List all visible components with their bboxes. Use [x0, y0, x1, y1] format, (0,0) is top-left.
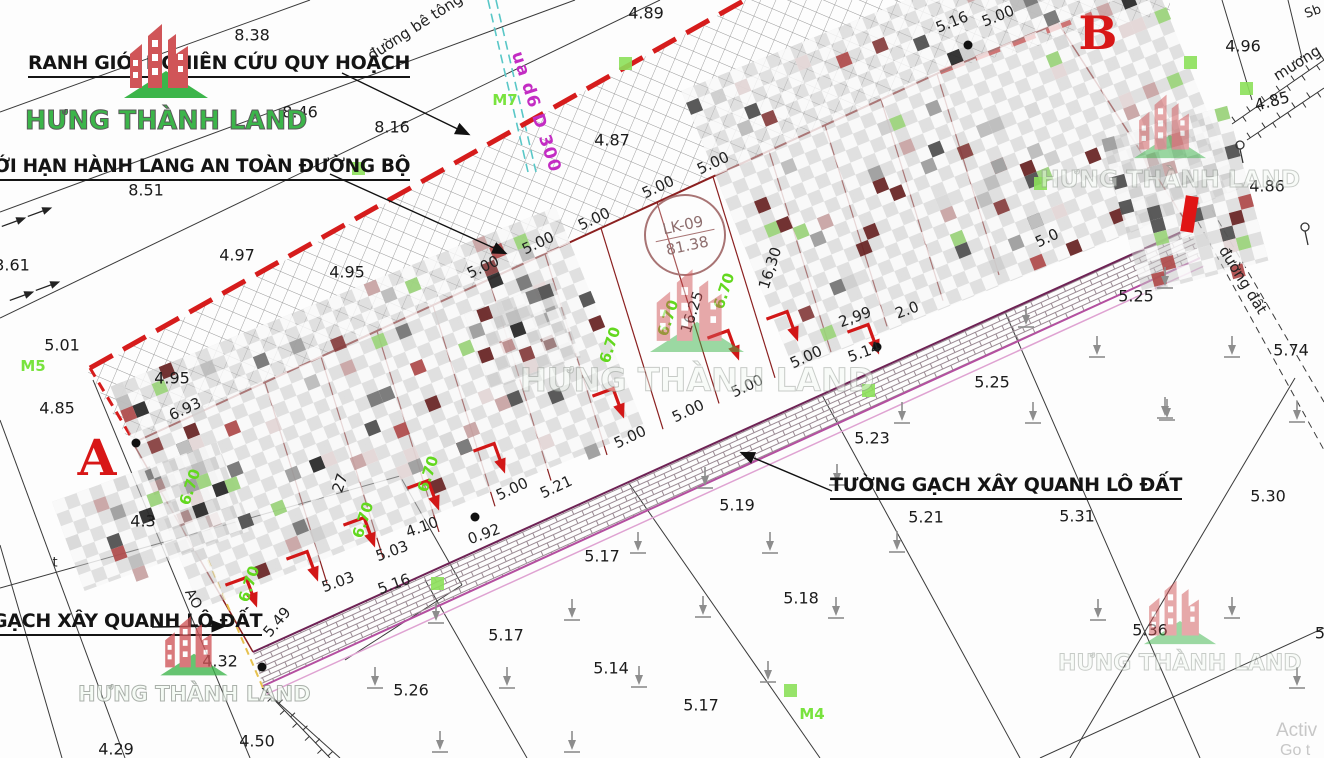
road-label: t — [52, 556, 57, 571]
elevation-label: 4.96 — [1225, 37, 1261, 56]
brand-name: HƯNG THÀNH LAND — [78, 682, 311, 706]
survey-point-dot — [132, 439, 141, 448]
spot-level-arrow — [894, 402, 910, 423]
spot-level-arrow — [1224, 336, 1240, 357]
flow-arrow-red — [473, 442, 510, 482]
survey-point-dot — [964, 41, 973, 50]
brand-name: HƯNG THÀNH LAND — [1040, 165, 1300, 193]
elevation-label: 8.16 — [374, 118, 410, 137]
brand-watermark-center: HƯNG THÀNH LAND — [520, 258, 874, 399]
elevation-label: 4.50 — [239, 732, 275, 751]
brand-building-icon — [154, 608, 234, 682]
spot-level-arrow — [367, 667, 383, 688]
elevation-label: 4.3 — [130, 512, 155, 531]
spot-level-arrow — [889, 531, 905, 552]
spot-level-arrow — [428, 602, 444, 623]
os-watermark-line1: Activ — [1276, 720, 1317, 742]
spot-level-arrow — [760, 661, 776, 682]
brand-name: HƯNG THÀNH LAND — [520, 361, 874, 399]
elevation-label: 4.97 — [219, 246, 255, 265]
brand-building-icon — [1127, 86, 1213, 165]
spot-level-arrow — [630, 532, 646, 553]
survey-marker-square — [431, 577, 444, 590]
elevation-label: 5.01 — [44, 336, 80, 355]
section-letter: A — [78, 433, 117, 483]
annotation-tuong-gach: TƯỜNG GẠCH XÂY QUANH LÔ ĐẤT — [830, 474, 1182, 500]
elevation-label: 4.95 — [329, 263, 365, 282]
survey-marker-square — [1184, 56, 1197, 69]
survey-marker-label: M4 — [799, 705, 824, 723]
road-direction-arrow — [8, 288, 35, 304]
section-marker-partial — [1180, 195, 1198, 233]
spot-level-arrow — [695, 596, 711, 617]
road-direction-arrow — [0, 214, 27, 230]
elevation-label: 4.85 — [39, 399, 75, 418]
elevation-label: 5.26 — [393, 681, 429, 700]
survey-marker-square — [619, 57, 632, 70]
section-letter: B — [1079, 10, 1118, 56]
elevation-label: 4.29 — [98, 740, 134, 758]
brand-watermark-top-right: HƯNG THÀNH LAND — [1040, 86, 1300, 193]
utility-pole-icon — [1301, 223, 1309, 245]
spot-level-arrow — [1157, 397, 1173, 418]
elevation-label: 5.17 — [584, 547, 620, 566]
brand-building-icon — [1137, 572, 1223, 651]
spot-level-arrow — [828, 597, 844, 618]
elevation-label: 5.25 — [1118, 287, 1154, 306]
spot-level-arrow — [697, 467, 713, 488]
spot-level-arrow — [564, 599, 580, 620]
brand-watermark-bottom-right: HƯNG THÀNH LAND — [1058, 572, 1302, 676]
brand-watermark-bottom-left: HƯNG THÀNH LAND — [78, 608, 311, 706]
elevation-label: 8.51 — [128, 181, 164, 200]
brand-building-icon — [116, 14, 216, 106]
elevation-label: 3.61 — [0, 256, 30, 275]
spot-level-arrow — [564, 731, 580, 752]
elevation-label: 5.30 — [1250, 487, 1286, 506]
spot-level-arrow — [631, 666, 647, 687]
elevation-label: 5.23 — [854, 429, 890, 448]
spot-level-arrow — [1025, 402, 1041, 423]
spot-level-arrow — [1089, 336, 1105, 357]
brand-building-icon — [641, 258, 753, 361]
elevation-label: 5.31 — [1059, 507, 1095, 526]
os-watermark-line2: Go t — [1280, 742, 1310, 758]
survey-marker-label: M5 — [20, 357, 45, 375]
brand-name: HƯNG THÀNH LAND — [1058, 651, 1302, 676]
spot-level-arrow — [1289, 401, 1305, 422]
elevation-label: 4.95 — [154, 369, 190, 388]
elevation-label: 5.74 — [1273, 341, 1309, 360]
brand-logo-top-left: HƯNG THÀNH LAND — [25, 14, 307, 136]
survey-marker-label: M7 — [492, 91, 517, 109]
spot-level-arrow — [1018, 306, 1034, 327]
elevation-label: 5.17 — [488, 626, 524, 645]
elevation-label: 5.19 — [719, 496, 755, 515]
annotation-gioi-han: ỚI HẠN HÀNH LANG AN TOÀN ĐƯỜNG BỘ — [0, 156, 410, 181]
spot-level-arrow — [1157, 267, 1173, 288]
road-direction-arrow — [34, 278, 61, 294]
elevation-label: 5.14 — [593, 659, 629, 678]
elevation-label: 5.21 — [908, 508, 944, 527]
survey-map-canvas: 8.384.894.968.468.164.874.854.868.513.61… — [0, 0, 1324, 758]
spot-level-arrow — [499, 667, 515, 688]
spot-level-arrow — [432, 731, 448, 752]
elevation-label: 5.17 — [683, 696, 719, 715]
road-direction-arrow — [26, 204, 53, 220]
elevation-label: 5 — [1315, 624, 1324, 643]
brand-name: HƯNG THÀNH LAND — [25, 106, 307, 136]
elevation-label: 5.25 — [974, 373, 1010, 392]
elevation-label: 5.18 — [783, 589, 819, 608]
spot-level-arrow — [762, 532, 778, 553]
survey-marker-square — [784, 684, 797, 697]
flow-arrow-red — [286, 550, 323, 590]
elevation-label: 4.89 — [628, 4, 664, 23]
elevation-label: 4.87 — [594, 131, 630, 150]
survey-point-dot — [471, 513, 480, 522]
